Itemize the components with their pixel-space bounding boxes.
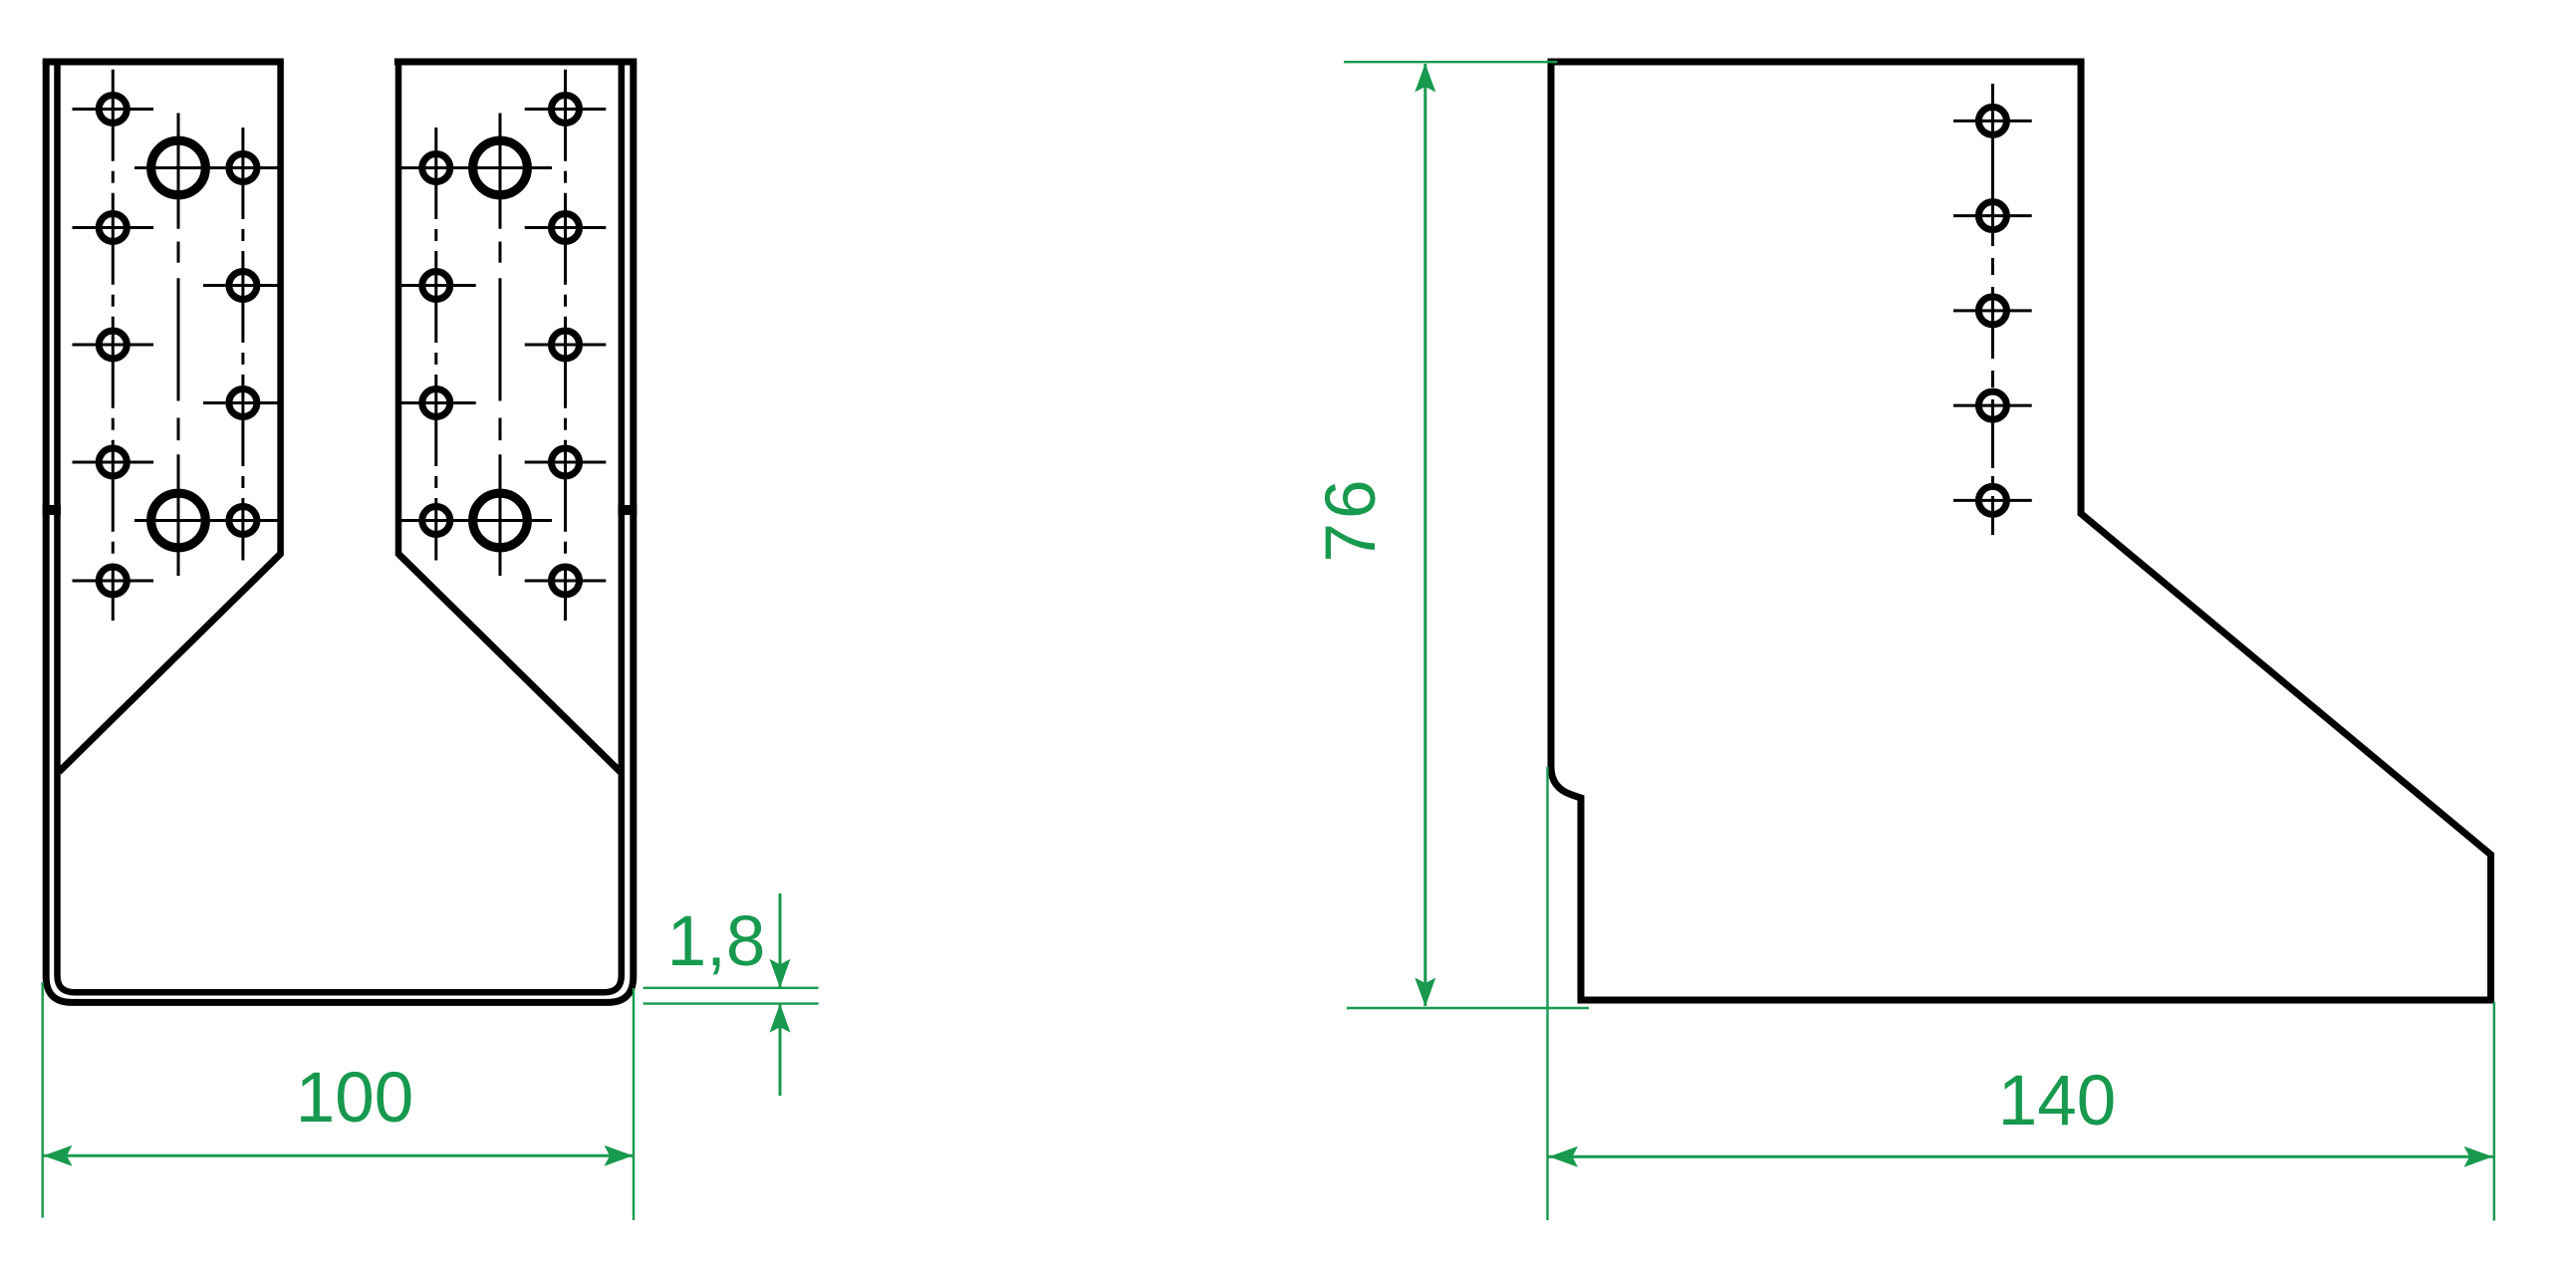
svg-text:1,8: 1,8 bbox=[667, 902, 766, 981]
svg-text:100: 100 bbox=[296, 1059, 413, 1138]
svg-text:76: 76 bbox=[1312, 476, 1391, 563]
svg-text:140: 140 bbox=[1998, 1062, 2116, 1141]
